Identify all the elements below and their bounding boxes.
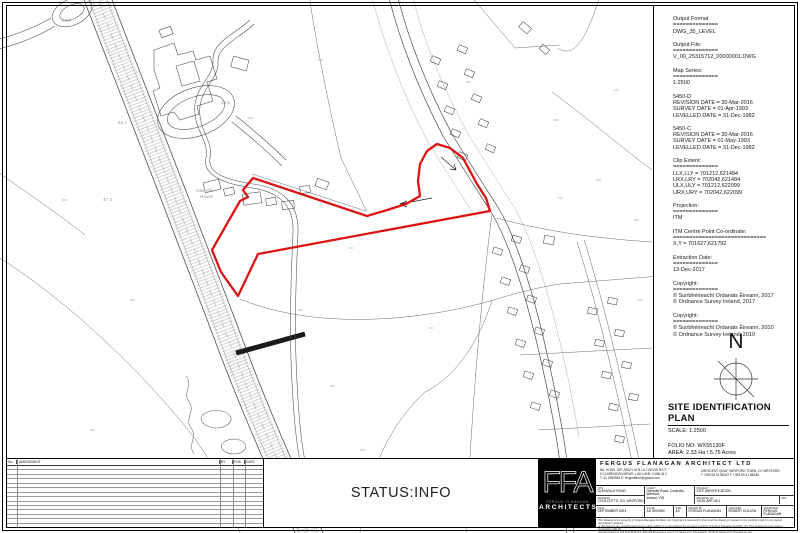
field-approved-value: FERGUS FLANAGAN — [764, 510, 795, 517]
status-cell: STATUS:INFO — [264, 459, 539, 527]
field-size-value: A3 — [676, 510, 687, 514]
field-checked: CHECKED ROBERT CULLEN — [726, 506, 761, 517]
field-date: DATE SEPTEMBER 2023 — [596, 506, 644, 517]
bottom-strip: No. AMENDMENT BY CHK DATE STATUS:INFO FF… — [6, 458, 795, 528]
field-townland: ADDRESS COOLCOTTS, CO. WEXFORD — [596, 495, 644, 504]
info-block: Projection:==============ITM — [673, 203, 791, 222]
field-scale: SCALE AS SHOWN — [644, 506, 673, 517]
map-label: 49.9 — [62, 18, 71, 23]
firm-logo: FFA FERGUS FLANAGAN ARCHITECTS — [539, 459, 596, 527]
drawing-sheet: GlenvilleHouse49.948.147.410.5 Output Fo… — [0, 0, 800, 533]
field-checked-value: ROBERT CULLEN — [729, 510, 762, 514]
map-label: 10.5 — [221, 100, 230, 105]
svg-text:FFA: FFA — [542, 466, 593, 499]
field-project-value: SITE IDENTIFICATION — [697, 490, 795, 494]
map-label: Glenville — [196, 188, 214, 193]
firm-details: BA. HONS. DIP. ARCH. M.R.I.A.I. ARCHITEC… — [596, 468, 794, 480]
field-size: SIZE A3 — [673, 506, 686, 517]
field-date-value: SEPTEMBER 2023 — [598, 510, 645, 514]
field-site-value: GLENVILLE ROAD — [598, 490, 645, 494]
info-block: Map Series:==============1:2500 — [673, 68, 791, 87]
firm-name: FERGUS FLANAGAN ARCHITECT LTD — [596, 459, 794, 468]
info-block: 5450-CREVISION DATE = 30-Mar-2016SURVEY … — [673, 126, 791, 151]
folio-number: FOLIO NO: WX55130F — [668, 443, 789, 449]
map-label: 48.1 — [118, 120, 127, 125]
field-client-value: Glenville Road, Coolcotts, Wexford, Irel… — [647, 490, 695, 501]
rev-col-amendment: AMENDMENT — [17, 460, 219, 464]
status-text: STATUS:INFO — [351, 485, 451, 501]
compass-icon — [654, 352, 795, 406]
north-label: N — [728, 330, 743, 354]
info-block: Copyright:==============© Suirbhéireacht… — [673, 281, 791, 306]
field-client: CLIENT Glenville Road, Coolcotts, Wexfor… — [644, 486, 694, 504]
plan-scale: SCALE: 1:2500 — [668, 428, 789, 434]
site-area: AREA: 2.33 Ha / 5.75 Acres — [668, 450, 789, 456]
revision-table: No. AMENDMENT BY CHK DATE — [7, 459, 264, 527]
field-approved: APPROVED FERGUS FLANAGAN — [761, 506, 794, 517]
revision-rows — [7, 466, 263, 527]
logo-firm-type: ARCHITECTS — [539, 504, 596, 511]
field-site: SITE GLENVILLE ROAD — [596, 486, 644, 495]
map-label: 47.4 — [103, 197, 112, 202]
field-rev: REV — [779, 495, 794, 504]
rev-col-date: DATE — [244, 460, 263, 464]
rev-divider — [220, 459, 221, 527]
field-project: PROJECT SITE IDENTIFICATION — [694, 486, 794, 495]
dublin-office: BA. HONS. DIP. ARCH. M.R.I.A.I. ARCHITEC… — [600, 468, 701, 480]
info-block: Output File:==============V_00_25315712_… — [673, 42, 791, 61]
revision-table-header: No. AMENDMENT BY CHK DATE — [7, 459, 263, 466]
field-rev-label: REV — [782, 497, 795, 500]
title-block: FERGUS FLANAGAN ARCHITECT LTD BA. HONS. … — [596, 459, 794, 527]
dublin-contact: T: 01 5383954 E: fergusffarch@gmail.com — [600, 476, 701, 480]
info-block: ITM Centre Point Co-ordinate:===========… — [673, 229, 791, 248]
field-drawn-value: FERGUS FLANAGAN — [689, 510, 727, 514]
rev-divider — [17, 459, 18, 527]
field-drawing-no: DRAWING NO TAOS-ART-05.1 — [694, 495, 779, 504]
revision-row — [7, 519, 263, 523]
wexford-contact: T +353 53 91 88447 F +353 53 91 88448 — [701, 473, 790, 477]
north-compass: N — [654, 328, 795, 406]
field-drawn: DRAWN BY FERGUS FLANAGAN — [686, 506, 726, 517]
rev-divider — [233, 459, 234, 527]
info-panel-blocks: Output Format==============DWG_35_LEVELO… — [673, 16, 791, 345]
rev-col-no: No. — [7, 460, 17, 464]
field-townland-value: COOLCOTTS, CO. WEXFORD — [598, 500, 645, 504]
plan-title: SITE IDENTIFICATION PLAN — [668, 402, 789, 426]
rev-divider — [245, 459, 246, 527]
title-block-row3: DATE SEPTEMBER 2023 SCALE AS SHOWN SIZE … — [596, 505, 794, 517]
field-drawing-no-value: TAOS-ART-05.1 — [697, 500, 780, 504]
field-scale-value: AS SHOWN — [647, 510, 674, 514]
info-block: Clip Extent:==============LLX,LLY = 7012… — [673, 158, 791, 196]
info-block: Output Format==============DWG_35_LEVEL — [673, 16, 791, 35]
info-block: Extraction Date:==============13-Dec-201… — [673, 255, 791, 274]
info-panel: Output Format==============DWG_35_LEVELO… — [654, 6, 795, 458]
info-block: 5450-DREVISION DATE = 30-Mar-2016SURVEY … — [673, 94, 791, 119]
disclaimer: This drawing is the property of Fergus F… — [596, 517, 794, 527]
wexford-office: CRESCENT QUAY, WEXFORD TOWN, CO WEXFORD … — [701, 468, 790, 480]
ffa-monogram-icon: FFA — [539, 459, 596, 501]
map-label: House — [200, 194, 213, 199]
